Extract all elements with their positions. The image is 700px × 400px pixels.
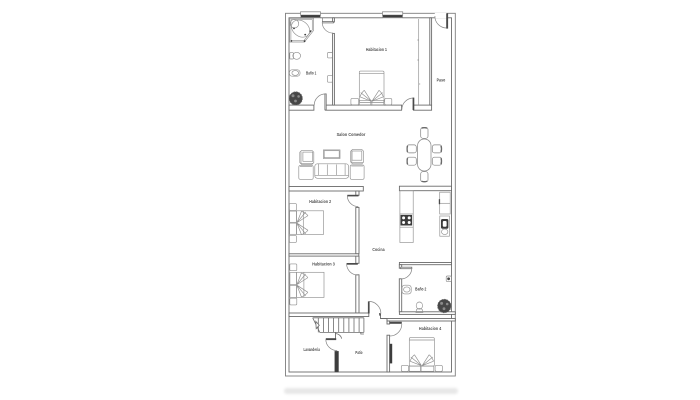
svg-text:Habitacion 2: Habitacion 2	[309, 199, 331, 204]
svg-text:Habitacion 4: Habitacion 4	[419, 326, 442, 331]
svg-text:Habitacion 3: Habitacion 3	[312, 262, 335, 267]
svg-text:Lavanderia: Lavanderia	[303, 347, 320, 352]
svg-text:Baño 1: Baño 1	[306, 71, 317, 76]
svg-text:Baño 2: Baño 2	[415, 287, 427, 292]
svg-text:Salon Comedor: Salon Comedor	[337, 132, 366, 137]
svg-text:Patio: Patio	[355, 350, 362, 355]
svg-text:Cocina: Cocina	[372, 247, 385, 252]
svg-text:Paso: Paso	[437, 78, 446, 83]
svg-text:Habitacion 1: Habitacion 1	[366, 47, 387, 52]
